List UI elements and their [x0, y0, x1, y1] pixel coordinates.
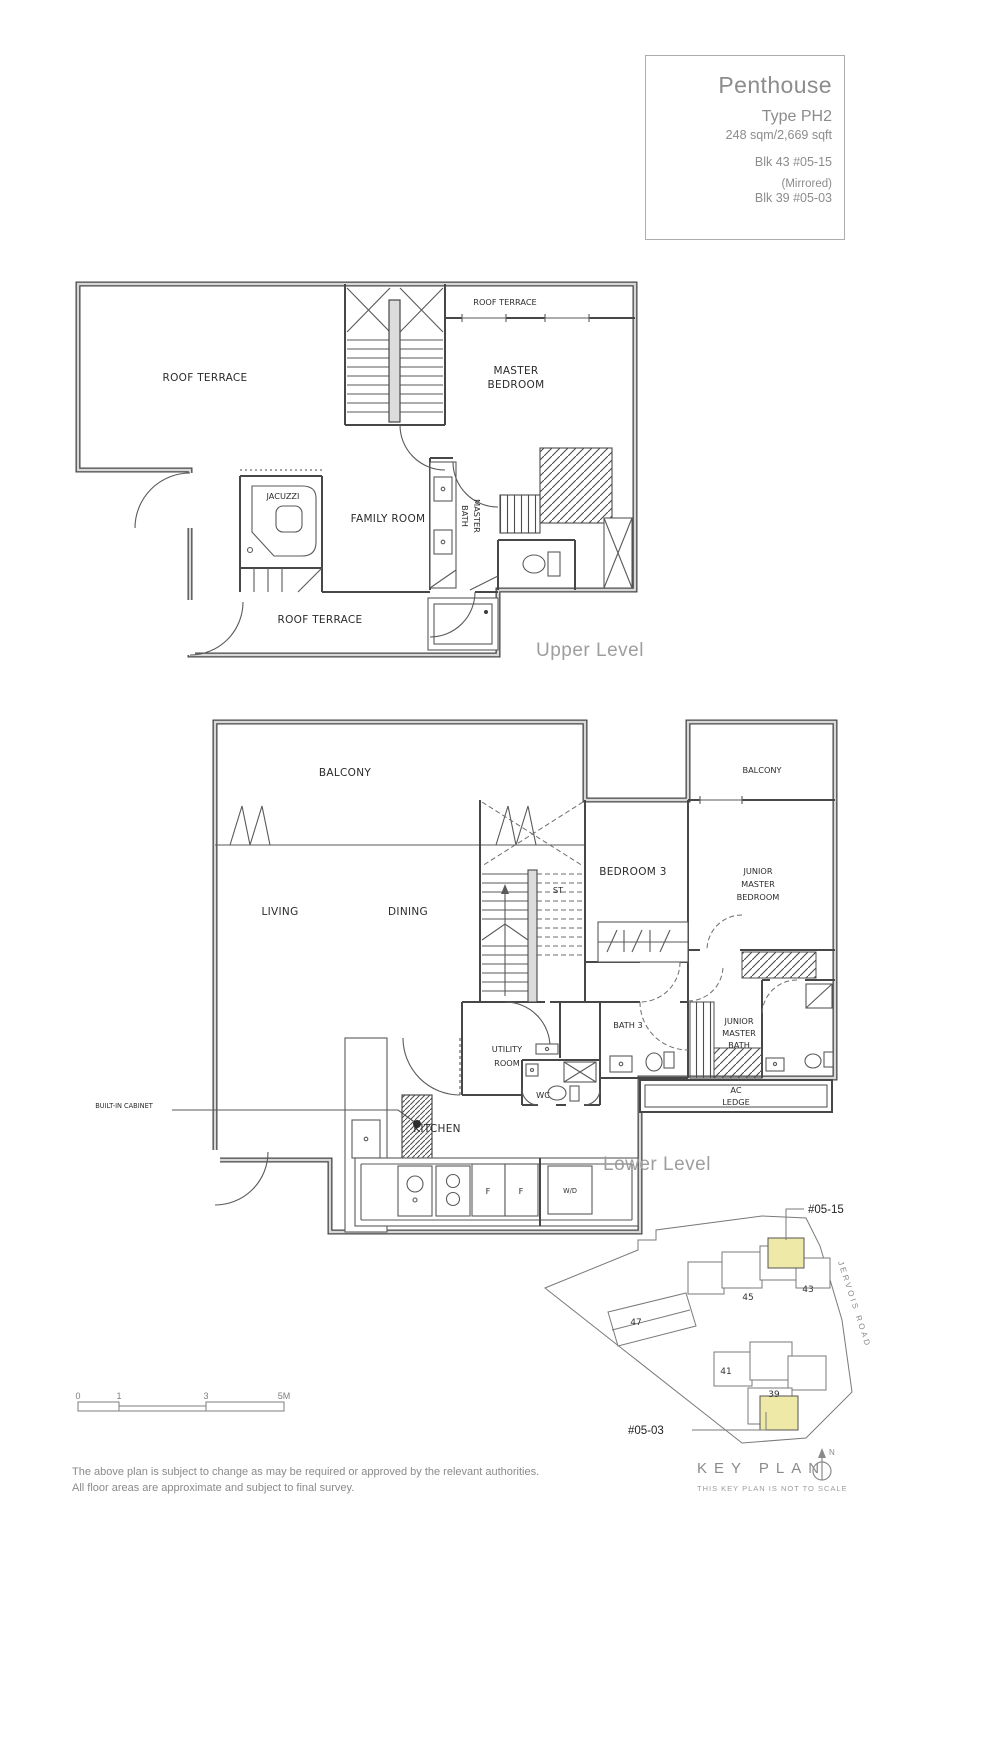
balcony-balustrade: [215, 806, 585, 845]
callout-05-15: #05-15: [808, 1204, 844, 1216]
label-built-in-cabinet: BUILT-IN CABINET: [95, 1102, 154, 1110]
room-label-balcony-left: BALCONY: [319, 767, 371, 779]
upper-wardrobe: [500, 448, 612, 533]
room-label-dining: DINING: [388, 906, 428, 918]
wc-room: [522, 1060, 600, 1105]
upper-level-caption: Upper Level: [536, 640, 644, 662]
block-45-43-cluster: 45 43: [688, 1238, 830, 1303]
room-label-roof-terrace-top: ROOF TERRACE: [473, 297, 536, 307]
room-label-master-2: BEDROOM: [488, 379, 545, 391]
upper-staircase: [345, 284, 445, 425]
room-label-master-bath: MASTER BATH: [460, 499, 482, 533]
room-label-bath3: BATH 3: [613, 1020, 643, 1030]
jacuzzi-room: [240, 470, 322, 592]
upper-level-floor-plan: ROOF TERRACE ROOF TERRACE MASTER BEDROOM…: [60, 270, 650, 680]
room-label-jmbath-3: BATH: [728, 1040, 750, 1050]
unit-block-1: Blk 43 #05-15: [646, 155, 832, 169]
junior-master-suite: [688, 915, 835, 1078]
north-label: N: [829, 1448, 835, 1457]
lower-level-floor-plan: BALCONY BALCONY LIVING DINING ST BEDROOM…: [60, 705, 860, 1250]
key-plan: 47 45 43 41 39 #05-15 #05-03: [520, 1190, 970, 1460]
room-label-roof-terrace-bottom: ROOF TERRACE: [278, 614, 363, 626]
disclaimer-line-2: All floor areas are approximate and subj…: [72, 1480, 539, 1496]
room-label-kitchen: KITCHEN: [413, 1123, 461, 1135]
lower-level-caption: Lower Level: [603, 1154, 711, 1176]
planter-box: [428, 598, 498, 650]
north-arrow-icon: N: [806, 1444, 840, 1488]
room-label-st: ST: [553, 885, 564, 895]
disclaimer-line-1: The above plan is subject to change as m…: [72, 1464, 539, 1480]
room-label-jmb-3: BEDROOM: [737, 892, 780, 902]
svg-text:41: 41: [720, 1367, 731, 1377]
room-label-utility-2: ROOM: [494, 1058, 520, 1068]
svg-text:BATH: BATH: [460, 505, 470, 527]
right-balcony-wall: [688, 796, 835, 804]
svg-text:47: 47: [630, 1318, 641, 1328]
scale-3: 3: [203, 1391, 208, 1401]
bath3: [600, 1002, 688, 1078]
unit-title: Penthouse: [646, 72, 832, 99]
svg-text:39: 39: [768, 1390, 780, 1400]
room-label-balcony-right: BALCONY: [742, 765, 782, 775]
room-label-roof-terrace-left: ROOF TERRACE: [163, 372, 248, 384]
room-label-jmb-2: MASTER: [741, 879, 775, 889]
disclaimer: The above plan is subject to change as m…: [72, 1464, 539, 1496]
room-label-family-room: FAMILY ROOM: [351, 513, 426, 525]
mirrored-note: (Mirrored): [646, 178, 832, 190]
unit-area: 248 sqm/2,669 sqft: [646, 128, 832, 142]
label-ledge: LEDGE: [722, 1097, 750, 1107]
label-fridge-1: F: [486, 1186, 491, 1196]
room-label-jmbath-2: MASTER: [722, 1028, 756, 1038]
scale-5m: 5M: [278, 1391, 291, 1401]
room-label-bedroom3: BEDROOM 3: [599, 866, 667, 878]
svg-text:45: 45: [742, 1293, 753, 1303]
floor-plan-page: Penthouse Type PH2 248 sqm/2,669 sqft Bl…: [0, 0, 1000, 1739]
svg-text:43: 43: [802, 1285, 813, 1295]
site-boundary: [545, 1216, 852, 1443]
callout-05-03: #05-03: [628, 1425, 664, 1437]
room-label-master-1: MASTER: [493, 365, 538, 377]
upper-shaft-box: [604, 518, 632, 588]
block-47: 47: [608, 1293, 696, 1346]
room-label-jacuzzi: JACUZZI: [266, 491, 300, 501]
scale-bar: 0 1 3 5M: [65, 1388, 305, 1420]
unit-block-2: Blk 39 #05-03: [646, 191, 832, 205]
upper-roof-terrace-strip: [445, 313, 635, 322]
block-41-39-cluster: 41 39: [714, 1342, 826, 1430]
title-block: Penthouse Type PH2 248 sqm/2,669 sqft Bl…: [645, 55, 845, 240]
room-label-jmbath-1: JUNIOR: [723, 1016, 753, 1026]
label-ac: AC: [730, 1085, 741, 1095]
highlighted-unit-05-15: [768, 1238, 804, 1268]
svg-text:MASTER: MASTER: [472, 499, 482, 533]
room-label-jmb-1: JUNIOR: [742, 866, 772, 876]
unit-type: Type PH2: [646, 108, 832, 126]
road-label: JERVOIS ROAD: [836, 1260, 873, 1349]
room-label-wc: WC: [536, 1090, 550, 1100]
room-label-utility-1: UTILITY: [492, 1044, 523, 1054]
scale-1: 1: [116, 1391, 121, 1401]
room-label-living: LIVING: [261, 906, 298, 918]
scale-0: 0: [75, 1391, 80, 1401]
